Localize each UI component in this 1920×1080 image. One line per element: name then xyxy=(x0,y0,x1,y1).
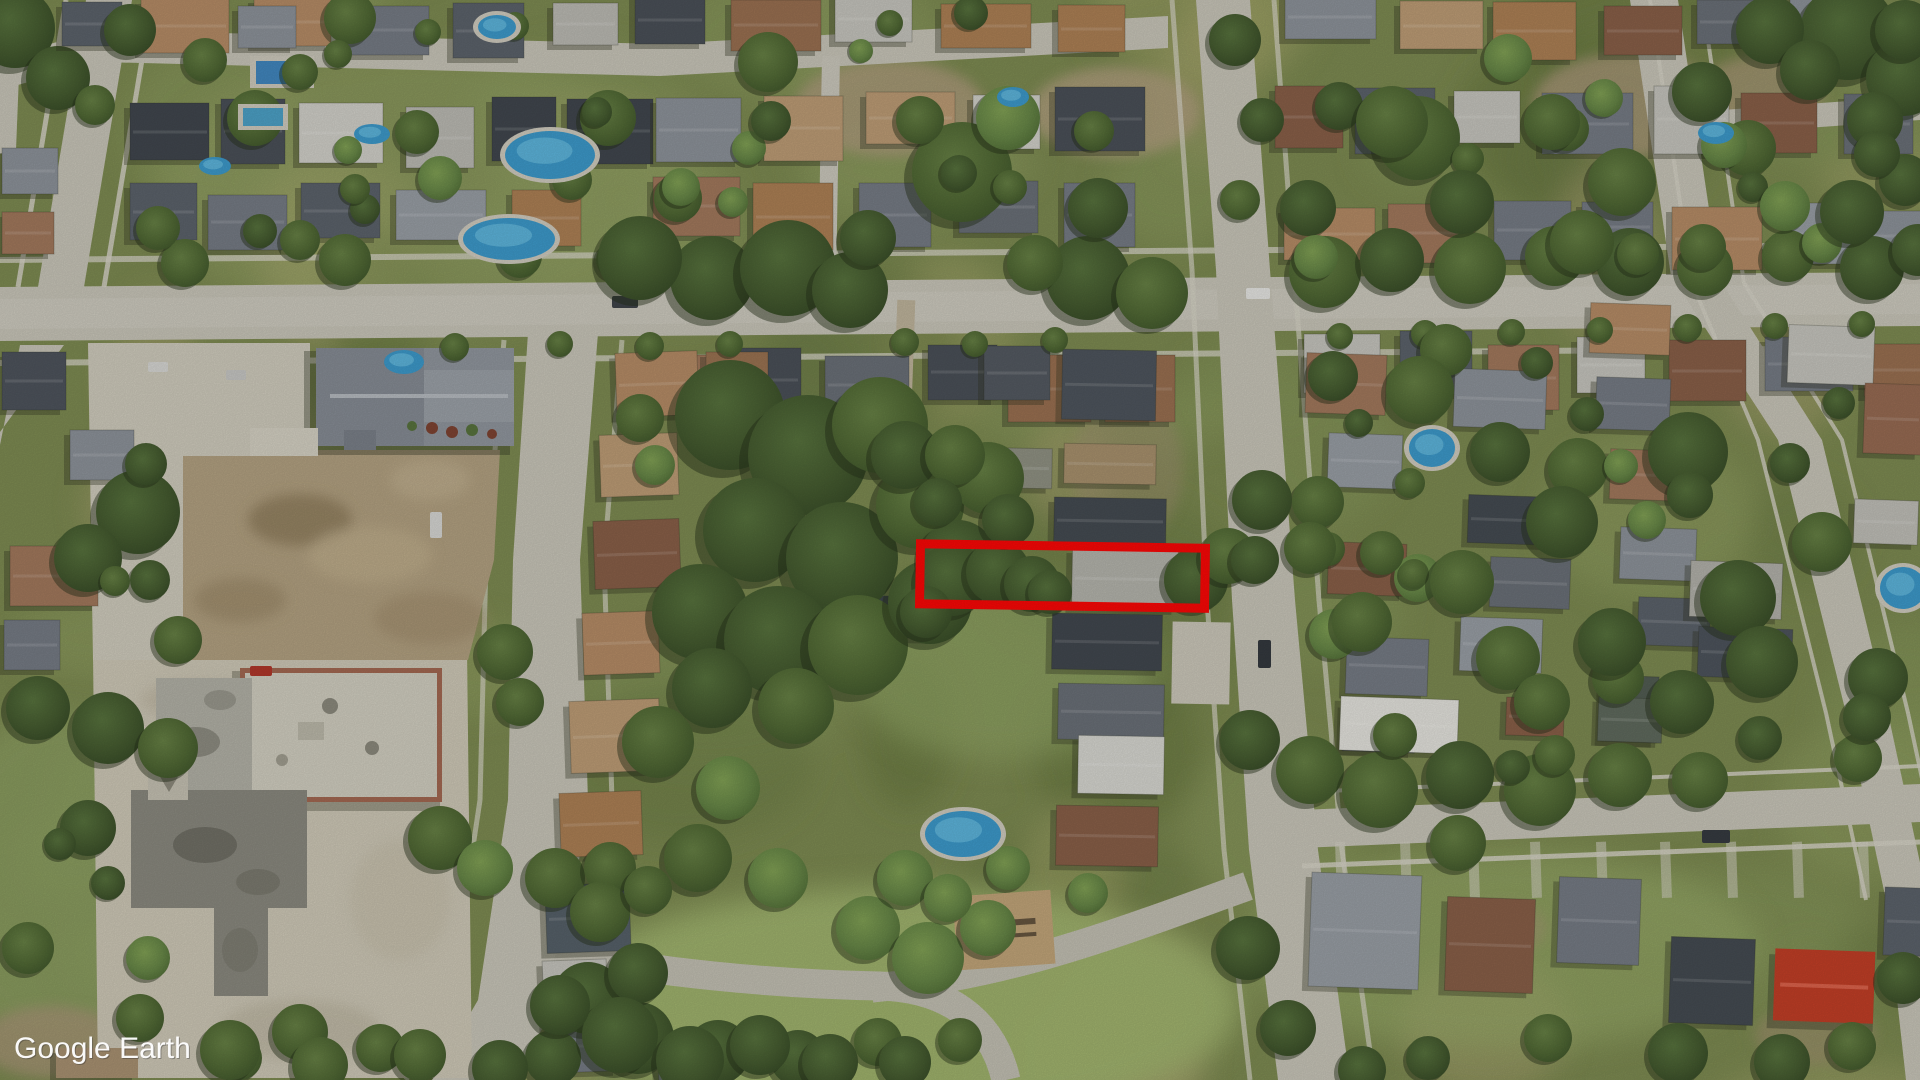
svg-text:Google Earth: Google Earth xyxy=(14,1032,191,1065)
